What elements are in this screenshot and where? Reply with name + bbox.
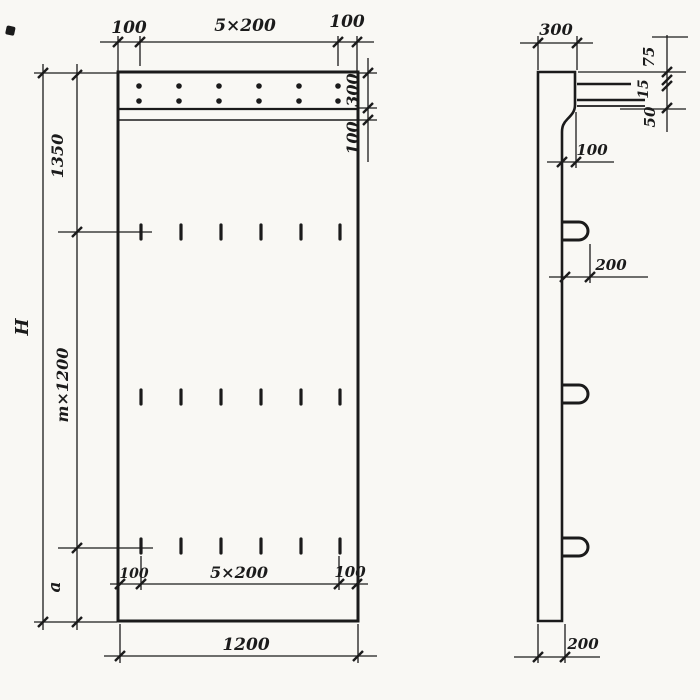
anchor-dot <box>256 83 262 89</box>
dim-front-top-left: 100 <box>111 18 147 38</box>
dim-front-overall-height: H <box>12 318 33 337</box>
front-view: 100 5×200 100 300 100 1350 m×1200 a H 10… <box>12 12 377 663</box>
anchor-dot <box>296 83 302 89</box>
dim-front-lower-height: a <box>45 581 65 592</box>
dim-front-lip-height: 100 <box>343 121 362 154</box>
anchor-dots <box>136 83 341 104</box>
dim-front-band-height: 300 <box>343 73 362 106</box>
technical-drawing: 100 5×200 100 300 100 1350 m×1200 a H 10… <box>0 0 700 700</box>
side-dimension-lines <box>514 35 688 663</box>
anchor-dot <box>216 83 222 89</box>
lifting-loop <box>562 222 588 240</box>
slot-row-lower <box>141 539 340 553</box>
dim-side-web-thickness: 200 <box>566 635 599 653</box>
anchor-dot <box>176 98 182 104</box>
slot-row-upper <box>141 225 340 239</box>
dim-front-bottom-inner-right: 100 <box>334 563 366 581</box>
anchor-dot <box>136 98 142 104</box>
anchor-dot <box>335 98 341 104</box>
dim-front-top-right: 100 <box>329 12 365 32</box>
side-view: 300 75 15 50 100 200 200 <box>514 20 688 663</box>
drawing-sheet: 100 5×200 100 300 100 1350 m×1200 a H 10… <box>0 0 700 700</box>
anchor-dot <box>335 83 341 89</box>
lifting-loop <box>562 385 588 403</box>
dim-side-flange-top: 75 <box>640 47 658 68</box>
dim-side-top-width: 300 <box>539 20 572 39</box>
dim-side-flange-mid: 15 <box>636 79 652 98</box>
dim-front-upper-height: 1350 <box>48 134 67 179</box>
dim-front-module-height: m×1200 <box>53 348 72 423</box>
panel-outline <box>118 72 358 621</box>
front-dimension-lines <box>34 36 377 663</box>
anchor-dot <box>176 83 182 89</box>
dim-side-lip-offset: 100 <box>576 141 608 159</box>
anchor-dot <box>136 83 142 89</box>
side-tick-marks <box>533 38 672 662</box>
front-tick-marks <box>38 37 373 661</box>
dim-front-bottom-inner-span: 5×200 <box>210 563 268 582</box>
anchor-dot <box>256 98 262 104</box>
anchor-dot <box>296 98 302 104</box>
dim-front-overall-width: 1200 <box>222 635 269 655</box>
slot-row-middle <box>141 390 340 404</box>
lifting-loops <box>562 222 588 556</box>
side-dimension-labels: 300 75 15 50 100 200 200 <box>539 20 659 653</box>
lifting-loop <box>562 538 588 556</box>
dim-front-top-span: 5×200 <box>214 16 276 36</box>
dim-front-bottom-inner-left: 100 <box>119 566 148 582</box>
anchor-dot <box>216 98 222 104</box>
dim-side-flange-bottom: 50 <box>641 106 659 127</box>
ink-speck <box>5 25 16 36</box>
dim-side-loop-offset: 200 <box>594 256 627 274</box>
